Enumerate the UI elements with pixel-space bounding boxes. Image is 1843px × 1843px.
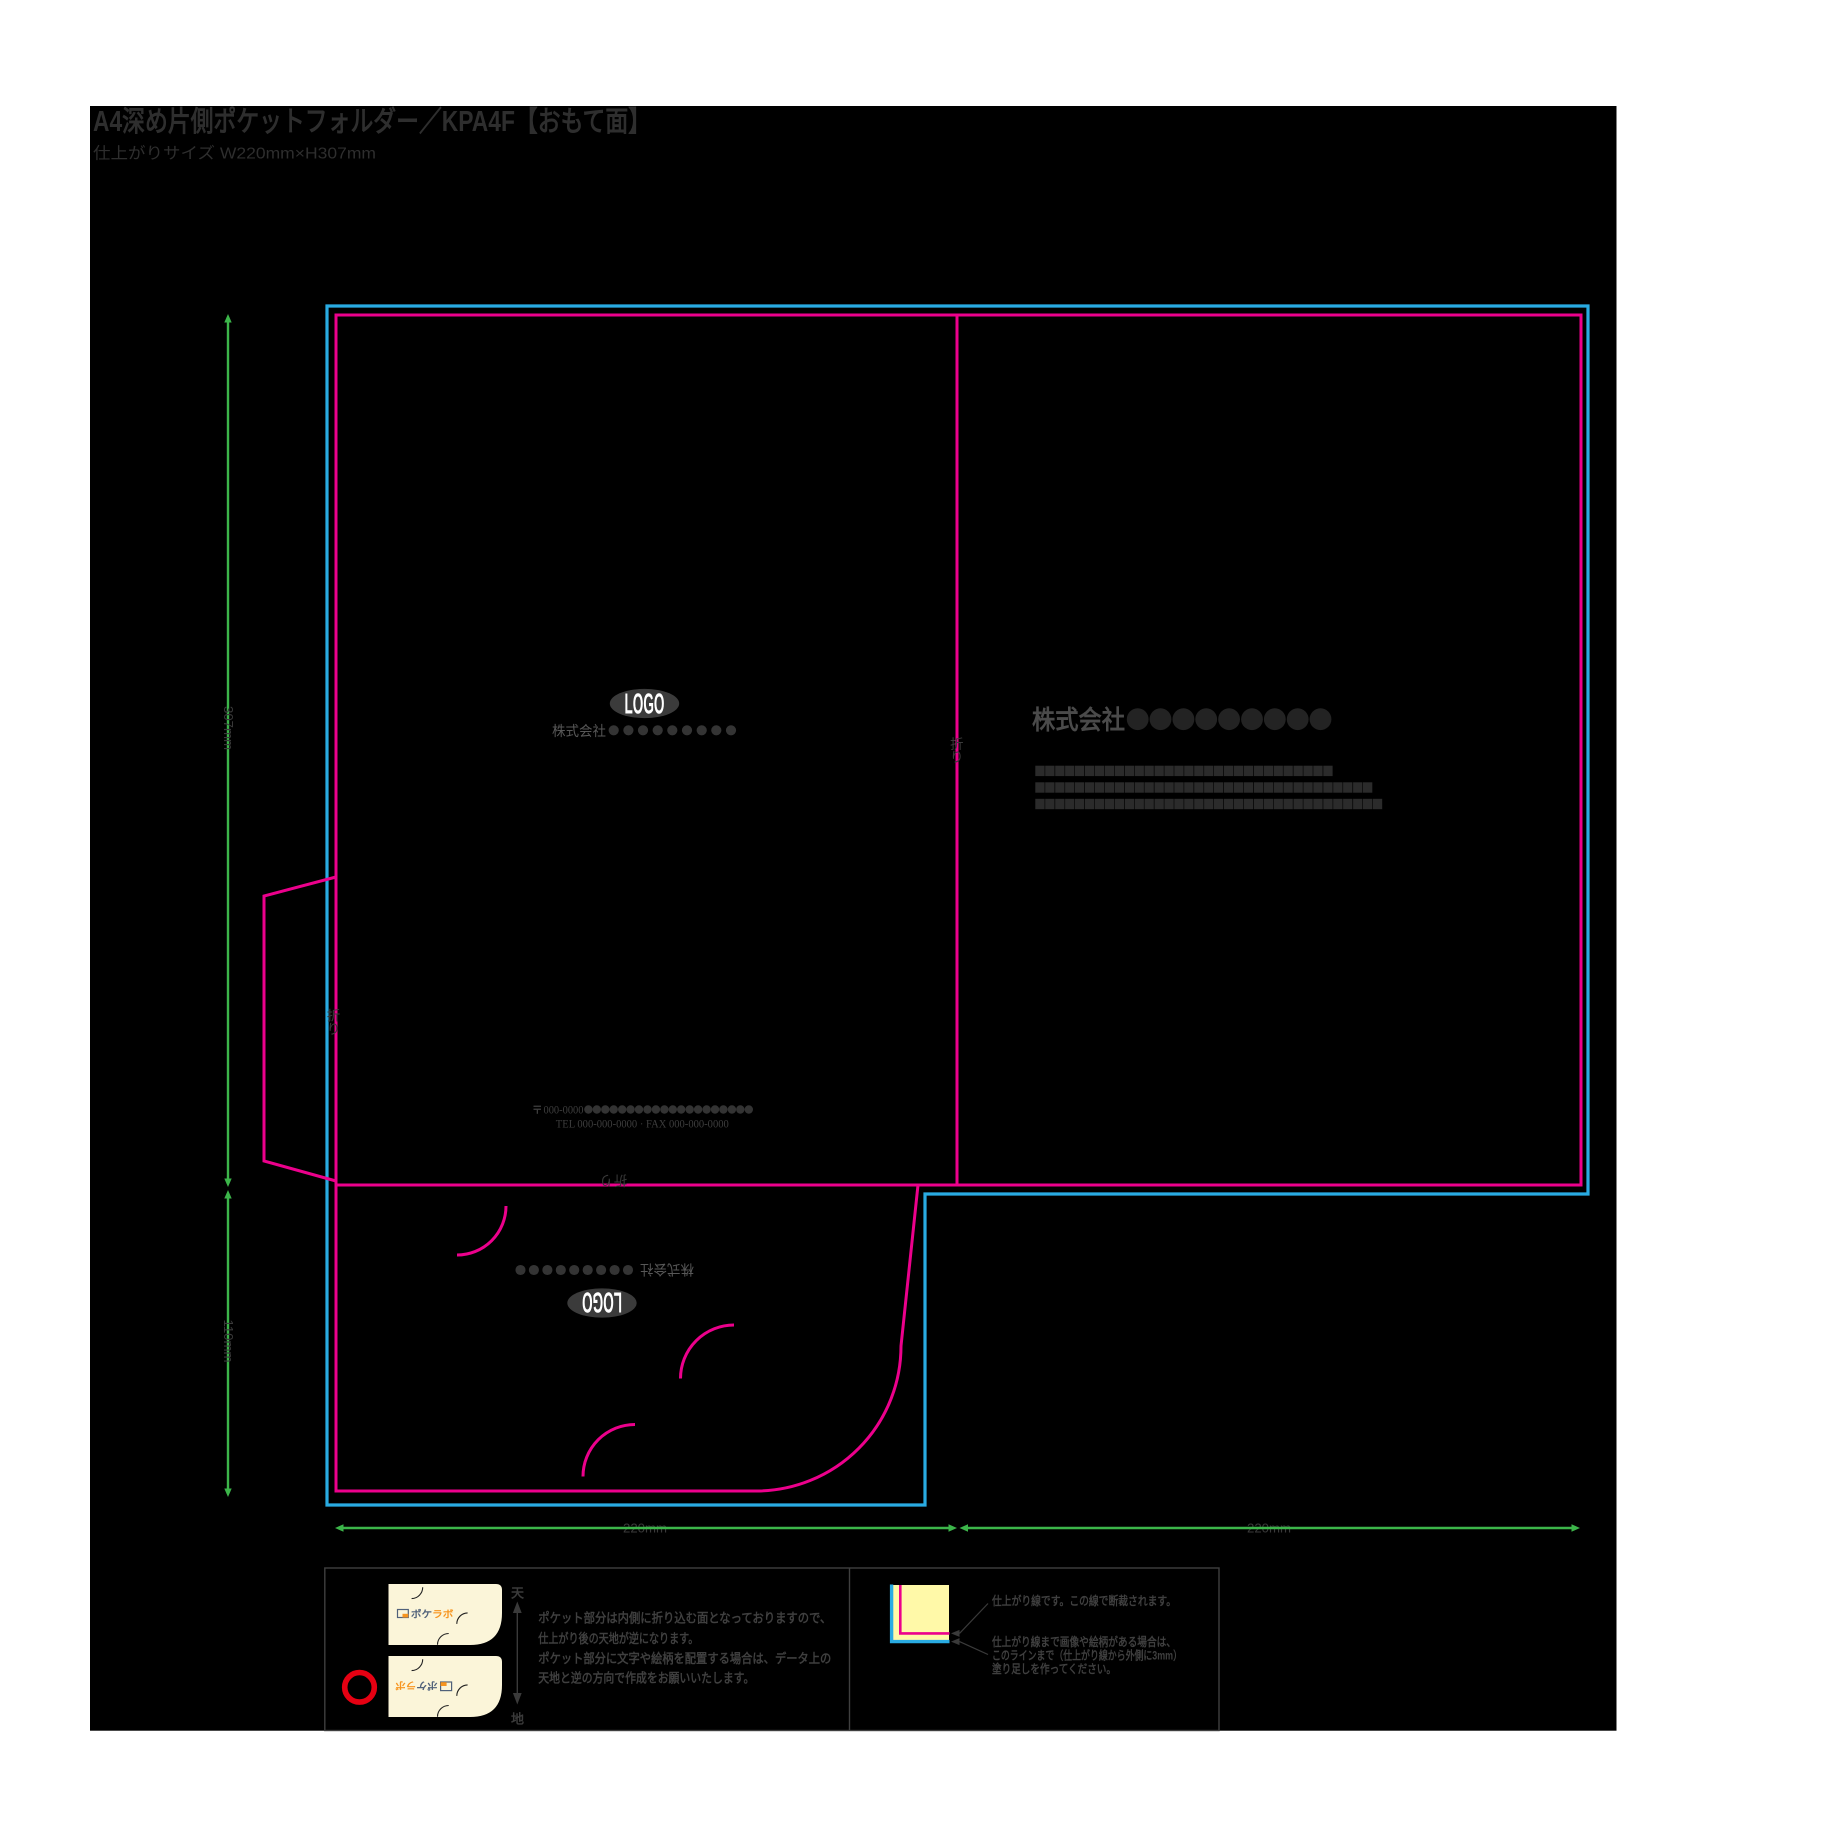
svg-text:天: 天 [511,1586,525,1601]
svg-text:り: り [327,1022,341,1037]
svg-text:A4深め片側ポケットフォルダー／KPA4F【おもて面】: A4深め片側ポケットフォルダー／KPA4F【おもて面】 [93,105,651,138]
svg-text:仕上がりサイズ W220mm×H307mm: 仕上がりサイズ W220mm×H307mm [93,145,376,163]
svg-text:ポケット部分は内側に折り込む面となっておりますので、: ポケット部分は内側に折り込む面となっておりますので、 [538,1610,831,1625]
svg-text:折り: 折り [599,1172,627,1187]
svg-text:株式会社: 株式会社 [1032,705,1125,735]
svg-text:仕上がり線です。この線で断裁されます。: 仕上がり線です。この線で断裁されます。 [991,1593,1176,1608]
svg-text:このラインまで（仕上がり線から外側に3mm）: このラインまで（仕上がり線から外側に3mm） [992,1648,1182,1663]
svg-text:塗り足しを作ってください。: 塗り足しを作ってください。 [992,1661,1116,1676]
svg-text:仕上がり線まで画像や絵柄がある場合は、: 仕上がり線まで画像や絵柄がある場合は、 [991,1634,1176,1649]
svg-text:ポケラボ: ポケラボ [395,1679,438,1691]
svg-text:ポケット部分に文字や絵柄を配置する場合は、データ上の: ポケット部分に文字や絵柄を配置する場合は、データ上の [538,1651,831,1666]
svg-text:天地と逆の方向で作成をお願いいたします。: 天地と逆の方向で作成をお願いいたします。 [538,1671,754,1686]
svg-text:LOGO: LOGO [625,689,665,721]
svg-text:り: り [950,750,964,765]
svg-text:TEL 000-000-0000 · FAX 000-000: TEL 000-000-0000 · FAX 000-000-0000 [556,1118,729,1130]
svg-text:307mm: 307mm [221,706,236,750]
svg-text:株式会社: 株式会社 [552,723,606,739]
svg-text:ポケラボ: ポケラボ [411,1609,454,1621]
svg-text:地: 地 [511,1712,524,1727]
svg-text:110mm: 110mm [221,1320,236,1363]
svg-text:仕上がり後の天地が逆になります。: 仕上がり後の天地が逆になります。 [538,1631,699,1646]
svg-text:株式会社: 株式会社 [640,1261,694,1277]
svg-text:000-0000: 000-0000 [544,1104,584,1116]
svg-text:LOGO: LOGO [582,1286,622,1318]
